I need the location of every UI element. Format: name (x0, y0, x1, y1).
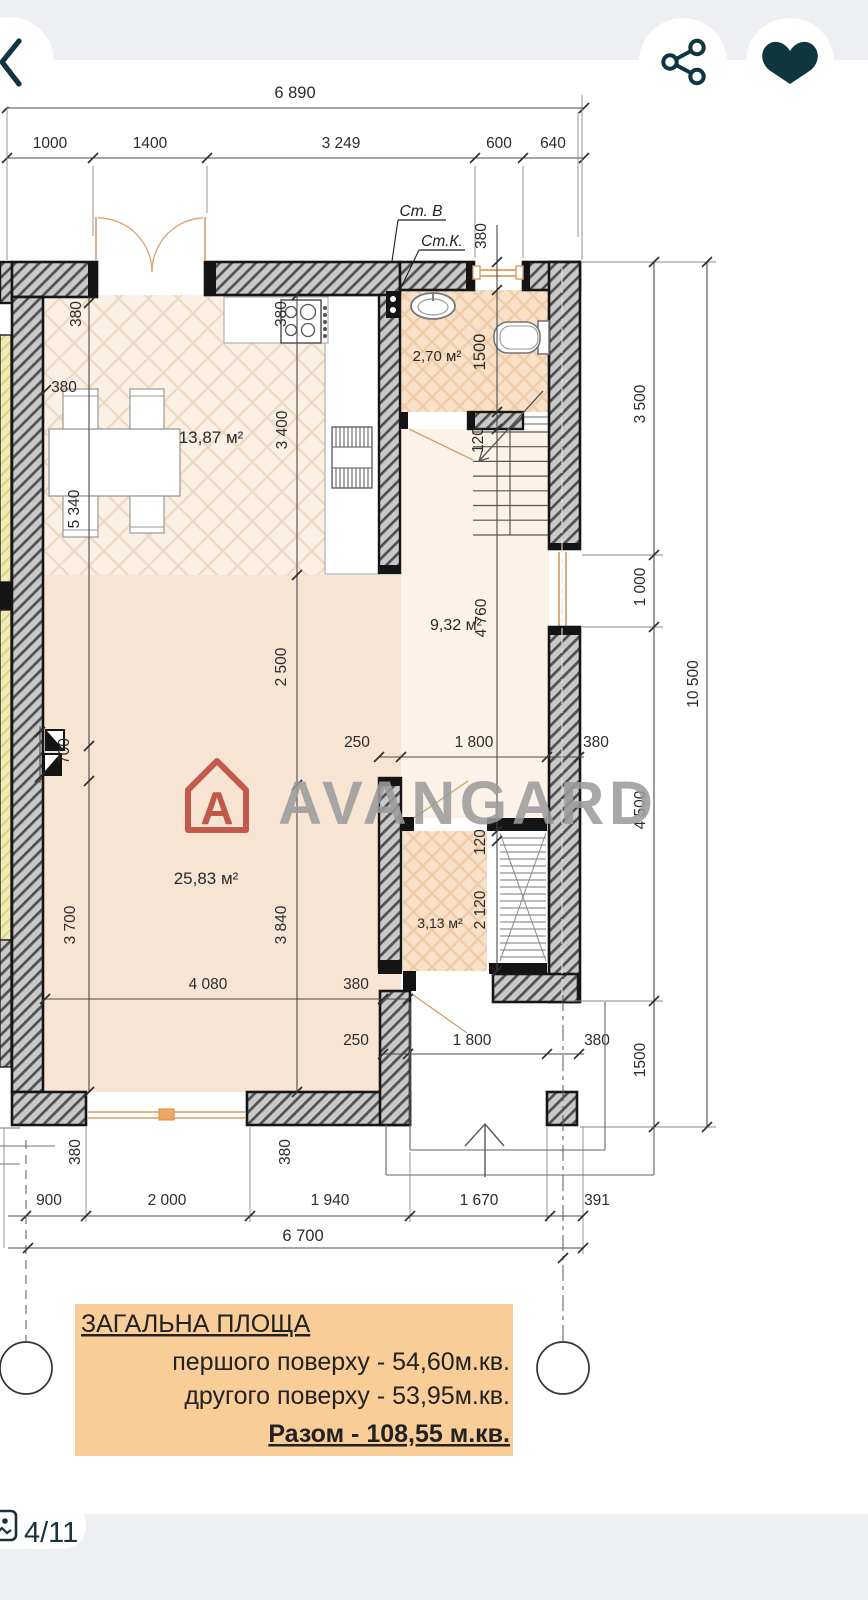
svg-text:першого поверху - 54,60м.кв.: першого поверху - 54,60м.кв. (172, 1348, 510, 1376)
svg-text:1 800: 1 800 (455, 734, 494, 751)
svg-text:700: 700 (56, 738, 73, 764)
svg-text:380: 380 (51, 379, 77, 396)
svg-text:250: 250 (343, 1032, 369, 1049)
svg-text:6 700: 6 700 (282, 1227, 323, 1245)
svg-text:ЗАГАЛЬНА ПЛОЩА: ЗАГАЛЬНА ПЛОЩА (81, 1310, 311, 1338)
svg-text:250: 250 (344, 734, 370, 751)
svg-text:2,70 м²: 2,70 м² (413, 348, 462, 365)
svg-text:2 000: 2 000 (148, 1192, 187, 1209)
svg-text:10 500: 10 500 (685, 660, 702, 708)
svg-text:3 249: 3 249 (322, 135, 361, 152)
svg-text:1500: 1500 (632, 1042, 649, 1077)
svg-text:380: 380 (584, 1032, 610, 1049)
svg-text:380: 380 (273, 301, 290, 327)
svg-text:120: 120 (470, 427, 487, 453)
svg-text:380: 380 (583, 734, 609, 751)
svg-text:600: 600 (486, 135, 512, 152)
svg-text:1 940: 1 940 (311, 1192, 350, 1209)
svg-text:3 700: 3 700 (62, 905, 79, 944)
svg-text:1400: 1400 (133, 135, 168, 152)
svg-text:1 800: 1 800 (453, 1032, 492, 1049)
svg-text:380: 380 (343, 976, 369, 993)
svg-text:4 080: 4 080 (189, 976, 228, 993)
svg-text:A: A (200, 782, 233, 834)
svg-text:другого поверху - 53,95м.кв.: другого поверху - 53,95м.кв. (184, 1382, 510, 1410)
svg-text:3 840: 3 840 (273, 905, 290, 944)
svg-text:900: 900 (36, 1192, 62, 1209)
svg-text:1000: 1000 (33, 135, 68, 152)
svg-text:3 400: 3 400 (274, 410, 291, 449)
svg-text:9,32 м²: 9,32 м² (430, 617, 483, 634)
svg-text:380: 380 (67, 1139, 84, 1165)
svg-text:380: 380 (68, 301, 85, 327)
svg-text:Разом - 108,55 м.кв.: Разом - 108,55 м.кв. (268, 1420, 510, 1448)
svg-text:Ст.К.: Ст.К. (421, 233, 463, 250)
svg-text:5 340: 5 340 (66, 489, 83, 528)
svg-text:380: 380 (277, 1139, 294, 1165)
svg-text:6 890: 6 890 (274, 84, 315, 102)
svg-text:391: 391 (584, 1192, 610, 1209)
svg-text:Ст. В: Ст. В (400, 203, 443, 220)
svg-text:3 500: 3 500 (632, 384, 649, 423)
svg-text:3,13 м²: 3,13 м² (417, 915, 463, 931)
svg-text:1 000: 1 000 (632, 567, 649, 606)
svg-text:13,87 м²: 13,87 м² (179, 428, 244, 447)
svg-text:380: 380 (473, 223, 490, 249)
svg-text:1500: 1500 (471, 334, 489, 371)
svg-text:2 500: 2 500 (273, 647, 290, 686)
svg-text:1 670: 1 670 (460, 1192, 499, 1209)
svg-text:640: 640 (540, 135, 566, 152)
svg-text:4/11: 4/11 (24, 1517, 78, 1549)
svg-text:AVANGARD: AVANGARD (278, 769, 657, 837)
svg-text:2 120: 2 120 (472, 890, 489, 929)
svg-text:25,83 м²: 25,83 м² (174, 869, 239, 888)
